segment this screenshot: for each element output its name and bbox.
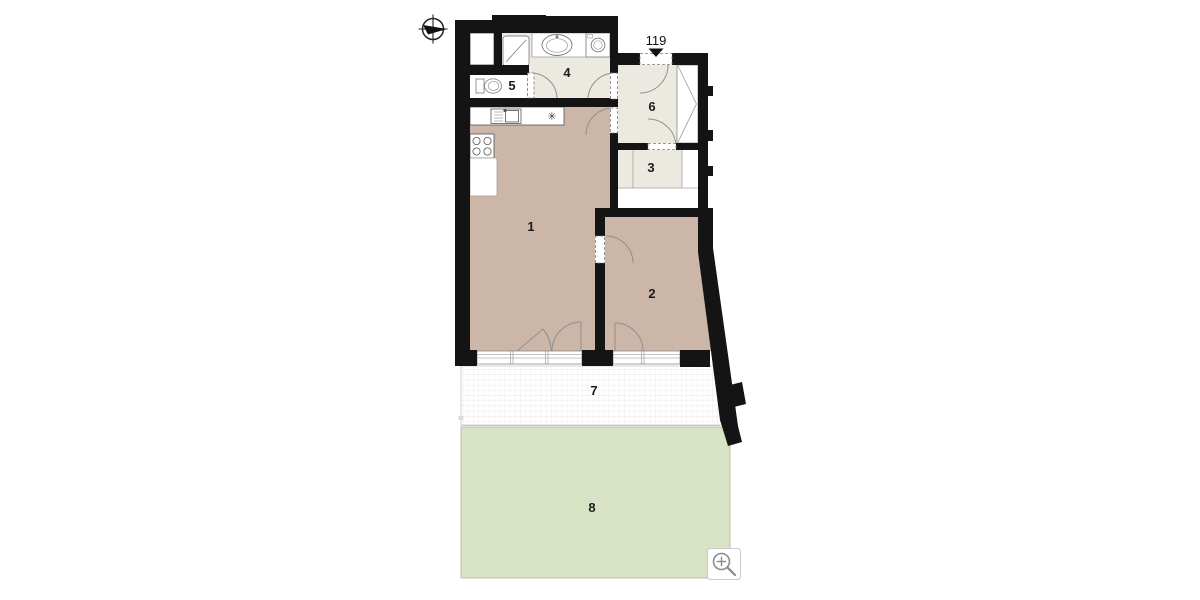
floor-plan-canvas: ✳ — [0, 0, 1200, 600]
window-band-bedroom — [613, 351, 680, 364]
kitchen-cabinet — [470, 158, 497, 196]
room-label-wc: 5 — [508, 78, 515, 93]
living-bedroom-door-frame — [596, 236, 605, 263]
floor-plan: ✳ — [419, 15, 747, 580]
washbasin-icon — [542, 35, 572, 56]
living-hall-door-frame — [611, 108, 618, 133]
window-band-living — [477, 351, 582, 364]
dishwasher-symbol: ✳ — [547, 110, 556, 123]
terrace-edge-tick — [459, 416, 464, 420]
kitchen-sink-icon — [491, 109, 521, 124]
zoom-in-button[interactable] — [708, 549, 741, 580]
shower-icon — [503, 36, 529, 66]
room-label-garden: 8 — [588, 500, 595, 515]
room-label-bedroom: 2 — [648, 286, 655, 301]
wc-bath-door-frame — [528, 73, 535, 98]
room-label-storage: 3 — [647, 160, 654, 175]
shaft-niche — [470, 33, 494, 65]
room-label-bathroom: 4 — [563, 65, 571, 80]
hall-storage-door-frame — [648, 144, 676, 150]
toilet-icon — [476, 79, 502, 93]
room-label-hall: 6 — [648, 99, 655, 114]
unit-number: 119 — [646, 33, 667, 48]
wardrobe-icon — [677, 65, 698, 143]
room-label-living: 1 — [527, 219, 534, 234]
hall-bath-door-frame — [611, 73, 618, 99]
washing-machine-icon — [586, 33, 610, 57]
room-label-terrace: 7 — [590, 383, 597, 398]
stove-icon — [470, 134, 494, 158]
